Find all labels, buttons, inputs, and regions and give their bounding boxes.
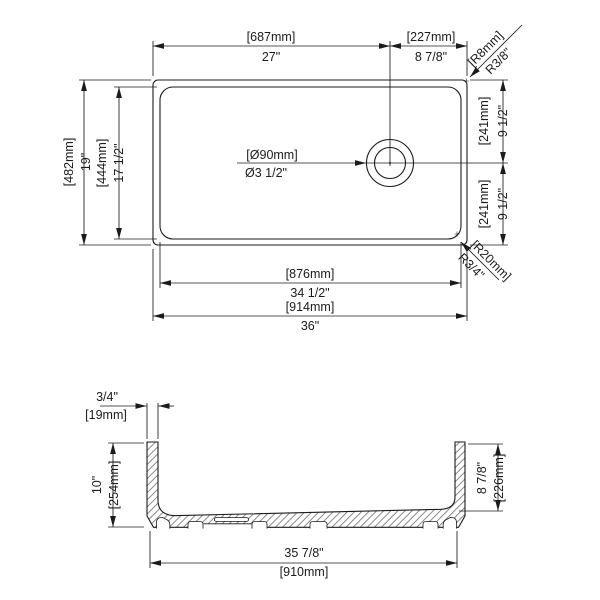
section-body (147, 442, 465, 527)
base-slot (215, 518, 249, 522)
dim-drain-to-bottom-mm: [241mm] (477, 180, 491, 229)
dim-overall-height-mm: [254mm] (107, 461, 121, 510)
dim-basin-depth-in: 17 1/2" (112, 143, 126, 182)
drawing-canvas: [687mm] 27" [227mm] 8 7/8" [482mm] 19" [… (0, 0, 600, 600)
dim-top-width-in: 27" (262, 50, 280, 64)
dim-drain-offset-mm: [227mm] (407, 30, 456, 44)
dim-drain-offset-in: 8 7/8" (415, 50, 447, 64)
sink-technical-drawing: [687mm] 27" [227mm] 8 7/8" [482mm] 19" [… (0, 0, 600, 600)
dim-drain-to-top-mm: [241mm] (477, 97, 491, 146)
dim-overall-length-mm: [914mm] (286, 300, 335, 314)
dim-overall-depth-mm: [482mm] (62, 138, 76, 187)
dim-section-depth-mm: [226mm] (492, 454, 506, 503)
dim-basin-length-mm: [876mm] (286, 267, 335, 281)
dim-base-length-mm: [910mm] (280, 565, 329, 579)
basin-corner-radius-callout: [R20mm] R3/4" (455, 238, 513, 296)
dim-drain-diameter-in: Ø3 1/2" (245, 166, 287, 180)
dim-basin-depth-mm: [444mm] (95, 139, 109, 188)
dim-rim-thickness-in: 3/4" (96, 390, 118, 404)
section-dimension-lines (100, 406, 498, 563)
sink-outer-rim (153, 80, 467, 245)
section-extension-lines (108, 403, 503, 568)
dim-drain-diameter-mm: [Ø90mm] (246, 148, 297, 162)
foot-gap (423, 522, 438, 529)
dim-drain-to-bottom-in: 9 1/2" (496, 188, 510, 220)
foot-gap (310, 522, 327, 529)
dim-section-depth-in: 8 7/8" (475, 462, 489, 494)
dim-drain-to-top-in: 9 1/2" (496, 105, 510, 137)
dim-overall-depth-in: 19" (79, 153, 93, 171)
section-view: 3/4" [19mm] 10" [254mm] 8 7/8" [226mm] 3… (85, 390, 506, 579)
top-view: [687mm] 27" [227mm] 8 7/8" [482mm] 19" [… (62, 25, 522, 333)
dim-top-width-mm: [687mm] (247, 30, 296, 44)
dim-basin-length-in: 34 1/2" (290, 286, 329, 300)
foot-gap (188, 522, 203, 529)
foot-gap (252, 522, 267, 529)
dim-rim-thickness-mm: [19mm] (85, 408, 127, 422)
dim-base-length-in: 35 7/8" (284, 546, 323, 560)
dim-overall-length-in: 36" (301, 319, 319, 333)
dim-overall-height-in: 10" (90, 476, 104, 494)
